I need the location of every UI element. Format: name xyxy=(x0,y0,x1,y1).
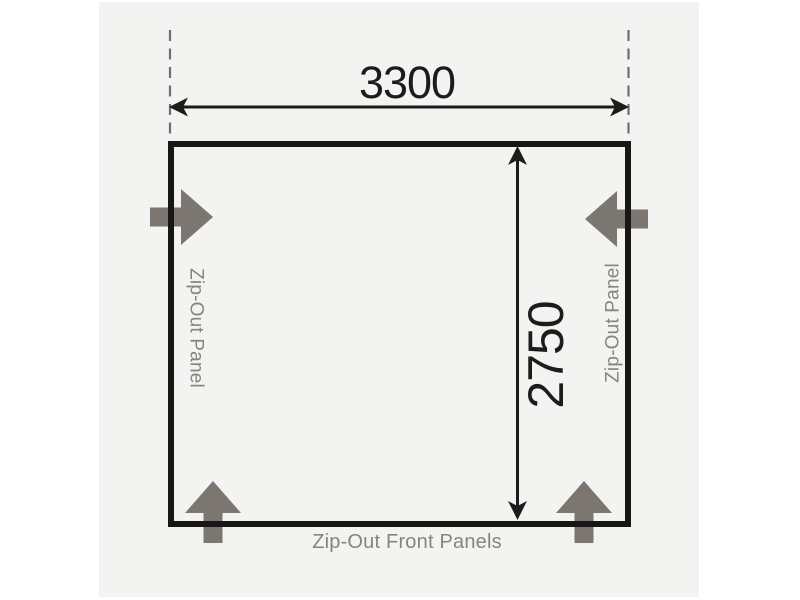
zip-out-arrow-left-icon xyxy=(150,189,213,245)
depth-dimension-value: 2750 xyxy=(521,301,571,408)
left-zip-out-panel-label: Zip-Out Panel xyxy=(187,268,206,388)
right-zip-out-panel-label: Zip-Out Panel xyxy=(604,263,623,383)
zip-out-arrow-bottom-right-icon xyxy=(556,481,612,543)
width-dimension-value: 3300 xyxy=(359,60,455,105)
zip-out-arrow-bottom-left-icon xyxy=(185,481,241,543)
front-zip-out-panels-label: Zip-Out Front Panels xyxy=(312,532,502,552)
floorplan-diagram: 3300 2750 Zip-Out Panel Zip-Out Panel Zi… xyxy=(0,0,800,600)
zip-out-arrow-right-icon xyxy=(585,191,648,247)
